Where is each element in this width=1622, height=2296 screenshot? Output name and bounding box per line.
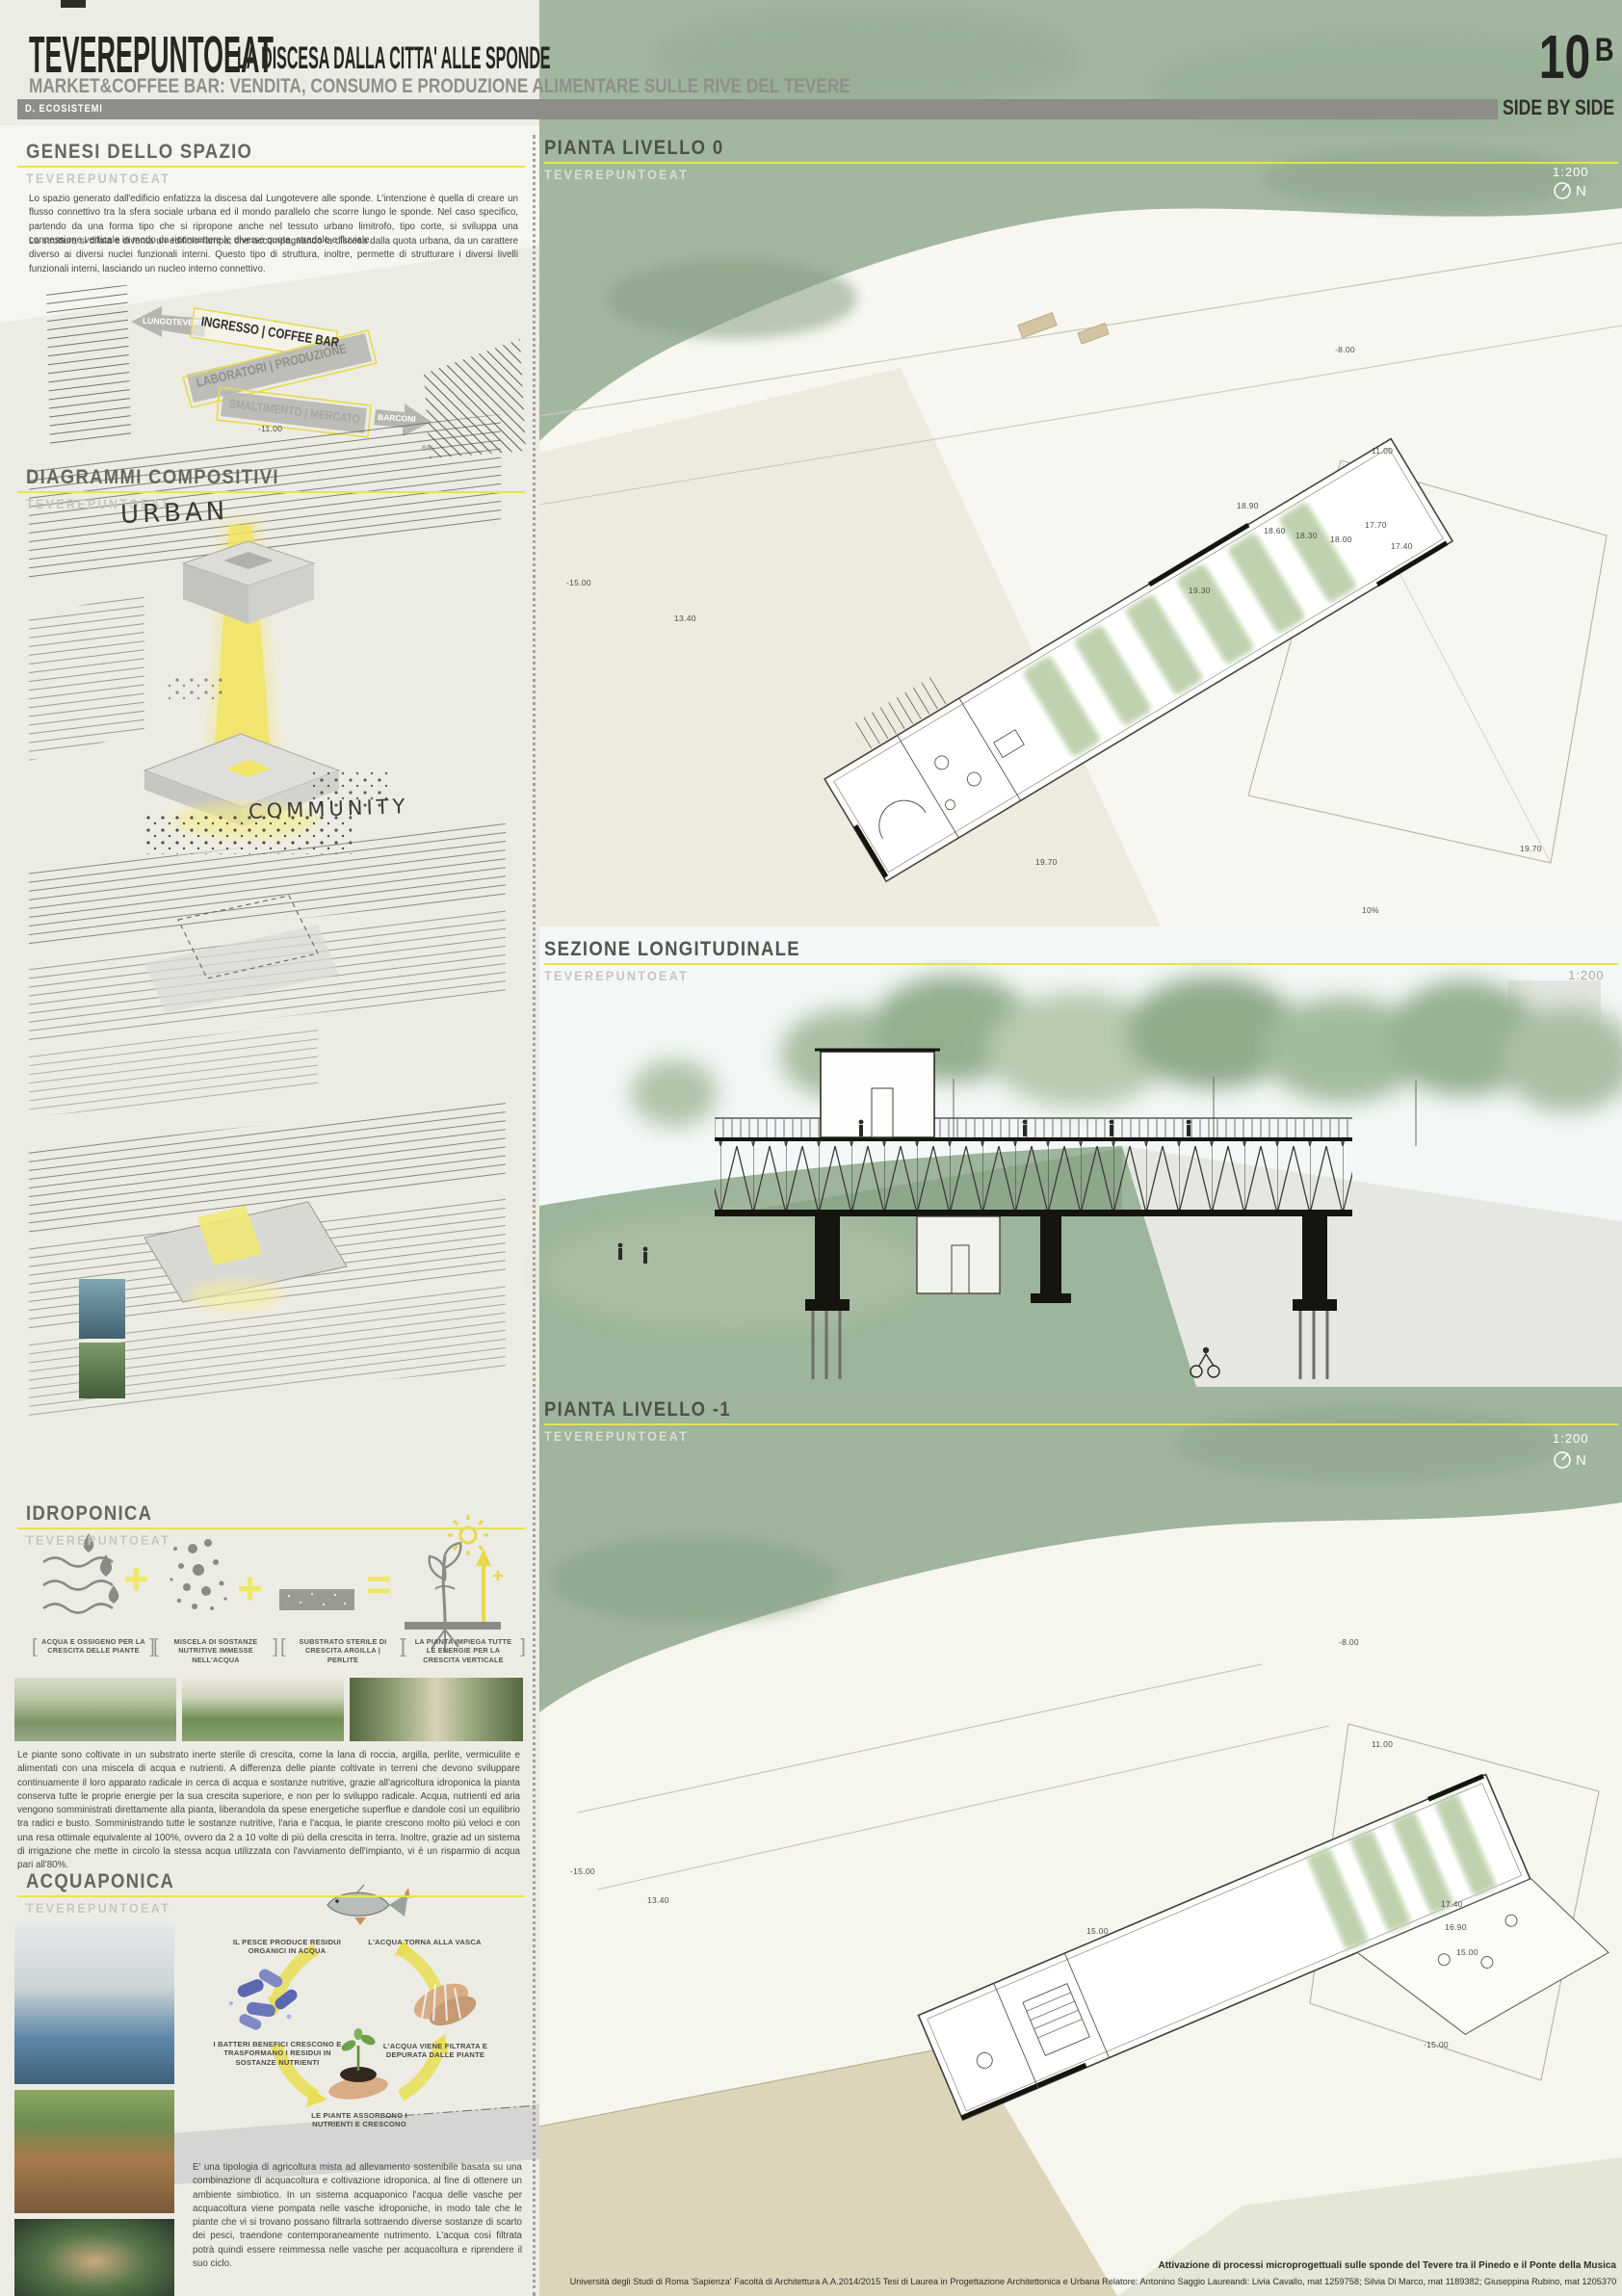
level-annotation: 17.70 [1365, 520, 1387, 530]
level-annotation: 18.60 [1264, 526, 1286, 535]
pianta0-scale: 1:200 [1553, 165, 1589, 179]
level-annotation: 15.00 [1456, 1947, 1478, 1957]
footer-line-2: Università degli Studi di Roma 'Sapienza… [537, 2277, 1616, 2287]
level-annotation: 11.00 [1372, 446, 1393, 456]
genesi-paragraph-2: La struttura si dilata e diventa un edif… [29, 235, 518, 276]
photo-greenhouse-aisle [14, 1678, 176, 1741]
ramp-slope-label: 6% [422, 443, 434, 453]
photo-aquaponics-frame [14, 1922, 174, 2084]
acquaponica-underline [17, 1895, 525, 1897]
board-motto-text: SIDE BY SIDE [1503, 95, 1614, 120]
board-number: 10B [1522, 21, 1614, 92]
formula-caption-1: ACQUA E OSSIGENO PER LA CRESCITA DELLE P… [40, 1637, 146, 1656]
cycle-label-filtered: L'ACQUA VIENE FILTRATA E DEPURATA DALLE … [372, 2042, 499, 2060]
level-annotation: -15.00 [570, 1866, 595, 1876]
pianta-m1-north-label: N [1576, 1452, 1587, 1469]
panel-pianta-m1-title: PIANTA LIVELLO -1 [544, 1398, 756, 1422]
idroponica-paragraph: Le piante sono coltivate in un substrato… [17, 1749, 520, 1873]
board-motto: SIDE BY SIDE [1475, 95, 1614, 120]
subtitle-text: LA DISCESA DALLA CITTA' ALLE SPONDE [237, 40, 551, 76]
substrate-icon [279, 1589, 354, 1610]
section-genesi-sub: TEVEREPUNTOEAT [26, 170, 187, 188]
main-subtitle: LA DISCESA DALLA CITTA' ALLE SPONDE [237, 40, 864, 76]
panel-pianta0-sub: TEVEREPUNTOEAT [544, 167, 705, 182]
level-annotation: -8.00 [1339, 1637, 1359, 1647]
pianta0-north-label: N [1576, 183, 1587, 199]
cycle-label-plants: LE PIANTE ASSORBONO I NUTRIENTI E CRESCO… [295, 2111, 424, 2129]
tagline: MARKET&COFFEE BAR: VENDITA, CONSUMO E PR… [29, 75, 1031, 98]
panel-pianta-m1-sub: TEVEREPUNTOEAT [544, 1428, 705, 1444]
series-bar: D. ECOSISTEMI [17, 99, 1498, 119]
board-number-text: 10 [1539, 21, 1590, 92]
poster-board: { "brand": "TEVEREPUNTOEAT", "header": {… [0, 0, 1622, 2296]
genesi-underline [17, 166, 525, 168]
idroponica-underline [17, 1527, 525, 1529]
board-suffix-text: B [1595, 32, 1614, 69]
panel-pianta0-title: PIANTA LIVELLO 0 [544, 137, 748, 160]
level-annotation: 17.40 [1441, 1899, 1463, 1909]
level-annotation: 11.00 [1372, 1739, 1393, 1749]
section-idroponica-title: IDROPONICA [26, 1502, 170, 1526]
ramp-quota-label: -11.00 [258, 424, 282, 433]
level-annotation: 10% [1362, 905, 1379, 915]
formula-caption-3: SUBSTRATO STERILE DI CRESCITA ARGILLA | … [289, 1637, 397, 1664]
pianta0-underline [544, 162, 1618, 164]
panel-sezione-title: SEZIONE LONGITUDINALE [544, 938, 835, 961]
level-annotation: 18.30 [1295, 531, 1318, 540]
acquaponica-paragraph: E' una tipologia di agricoltura mista ad… [193, 2161, 522, 2271]
level-annotation: 16.90 [1445, 1922, 1467, 1932]
header-corner-mark [61, 0, 86, 8]
pianta-m1-underline [544, 1423, 1618, 1425]
footer-line-1: Attivazione di processi microprogettuali… [557, 2260, 1616, 2271]
level-annotation: 18.00 [1330, 535, 1352, 544]
cycle-label-return: L'ACQUA TORNA ALLA VASCA [368, 1938, 482, 1946]
photo-vine-tunnel [350, 1678, 523, 1741]
section-acquaponica-sub: TEVEREPUNTOEAT [26, 1900, 187, 1918]
sezione-underline [544, 963, 1618, 965]
level-annotation: 15.00 [1086, 1926, 1109, 1936]
level-annotation: 13.40 [674, 613, 696, 623]
level-annotation: 13.40 [647, 1895, 669, 1905]
cycle-label-fish: IL PESCE PRODUCE RESIDUI ORGANICI IN ACQ… [223, 1938, 351, 1956]
photo-wooden-planter [14, 2090, 174, 2213]
cycle-label-bacteria: I BATTERI BENEFICI CRESCONO E TRASFORMAN… [204, 2040, 351, 2067]
pianta-m1-scale: 1:200 [1553, 1431, 1589, 1446]
tagline-text: MARKET&COFFEE BAR: VENDITA, CONSUMO E PR… [29, 75, 850, 98]
formula-caption-4: LA PIANTA IMPIEGA TUTTE LE ENERGIE PER L… [409, 1637, 517, 1664]
column-divider [533, 135, 536, 2296]
section-acquaponica-title: ACQUAPONICA [26, 1870, 195, 1893]
level-annotation: -8.00 [1335, 345, 1355, 354]
level-annotation: 19.30 [1189, 586, 1211, 595]
photo-hydroponic-shelves [182, 1678, 344, 1741]
panel-pianta0-background [539, 136, 1622, 929]
photo-leafy-hands [14, 2219, 174, 2296]
panel-sezione-sub: TEVEREPUNTOEAT [544, 968, 705, 983]
section-genesi-title: GENESI DELLO SPAZIO [26, 141, 283, 164]
urban-label: URBAN [120, 497, 229, 530]
sezione-scale: 1:200 [1568, 968, 1605, 982]
photo-detail-water [79, 1279, 125, 1339]
formula-caption-2: MISCELA DI SOSTANZE NUTRITIVE IMMESSE NE… [162, 1637, 270, 1664]
equals-operator: = [366, 1562, 392, 1606]
level-annotation: 19.70 [1035, 857, 1058, 867]
diagrammi-underline [17, 491, 525, 493]
level-annotation: -15.00 [1424, 2040, 1449, 2049]
plus-operator-1: + [123, 1556, 149, 1601]
section-diagrammi-title: DIAGRAMMI COMPOSITIVI [26, 466, 314, 489]
barconi-arrow-label: BARCONI [378, 412, 416, 424]
level-annotation: -15.00 [566, 578, 591, 587]
level-annotation: 17.40 [1391, 541, 1413, 551]
level-annotation: 19.70 [1520, 844, 1542, 853]
plus-operator-2: + [237, 1566, 263, 1610]
series-label: D. ECOSISTEMI [25, 99, 103, 119]
photo-detail-plants [79, 1343, 125, 1398]
section-idroponica-sub: TEVEREPUNTOEAT [26, 1532, 187, 1550]
level-annotation: 18.90 [1237, 501, 1259, 510]
